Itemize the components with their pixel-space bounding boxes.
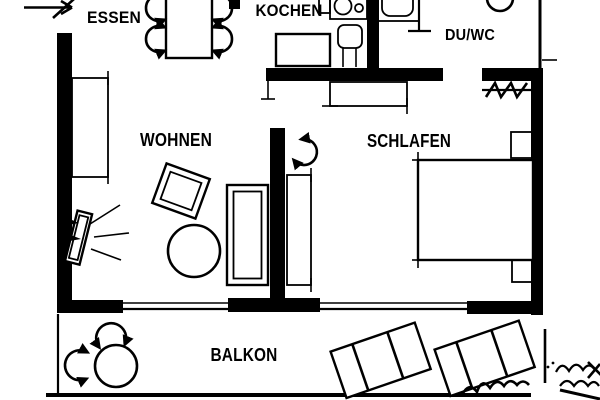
floorplan-drawing: ESSEN KOCHEN DU/WC WOHNEN SCHLAFEN BALKO… [0,0,600,400]
tv-rays [90,205,129,260]
bedroom [287,82,533,292]
dining-chair [146,26,164,52]
balcony-chair [96,323,126,347]
dining-table [166,0,212,58]
washbasin [487,0,513,11]
balcony-table [95,345,137,387]
room-label-wohnen: WOHNEN [140,130,212,150]
floorplan-page: ESSEN KOCHEN DU/WC WOHNEN SCHLAFEN BALKO… [0,0,600,400]
sun-lounger [331,323,431,398]
sofa [227,185,268,285]
kitchen-counter [276,34,330,66]
door-swing [294,139,317,165]
wall [57,300,123,313]
armchair [152,163,210,218]
dining-set [146,0,232,58]
wardrobe [322,82,407,114]
window [123,303,228,309]
wall [467,301,543,314]
balcony-chair [65,350,87,380]
balcony [46,314,600,399]
plant [556,362,600,399]
wardrobe [287,168,311,292]
window [320,303,467,309]
wall [266,68,443,81]
room-label-balkon: BALKON [211,345,278,365]
wall [270,128,285,298]
wall [228,298,320,312]
room-label-duwc: DU/WC [445,27,495,44]
door-frame-tick [261,81,275,99]
entrance-arrow [24,0,74,18]
kitchen-stool [338,25,362,67]
coffee-table [168,225,220,277]
dining-chair [146,0,164,21]
room-label-kochen: KOCHEN [256,1,323,20]
room-label-essen: ESSEN [87,8,141,27]
room-label-schlafen: SCHLAFEN [367,131,451,151]
living-room [58,71,268,285]
nightstand [512,260,533,282]
wall [367,0,379,70]
coat-rack [482,83,533,97]
stove [330,0,367,19]
dining-chair [214,26,232,52]
wall [57,33,72,313]
sideboard [72,71,108,184]
shower [376,0,431,32]
bed [412,152,533,268]
nightstand [511,132,533,158]
